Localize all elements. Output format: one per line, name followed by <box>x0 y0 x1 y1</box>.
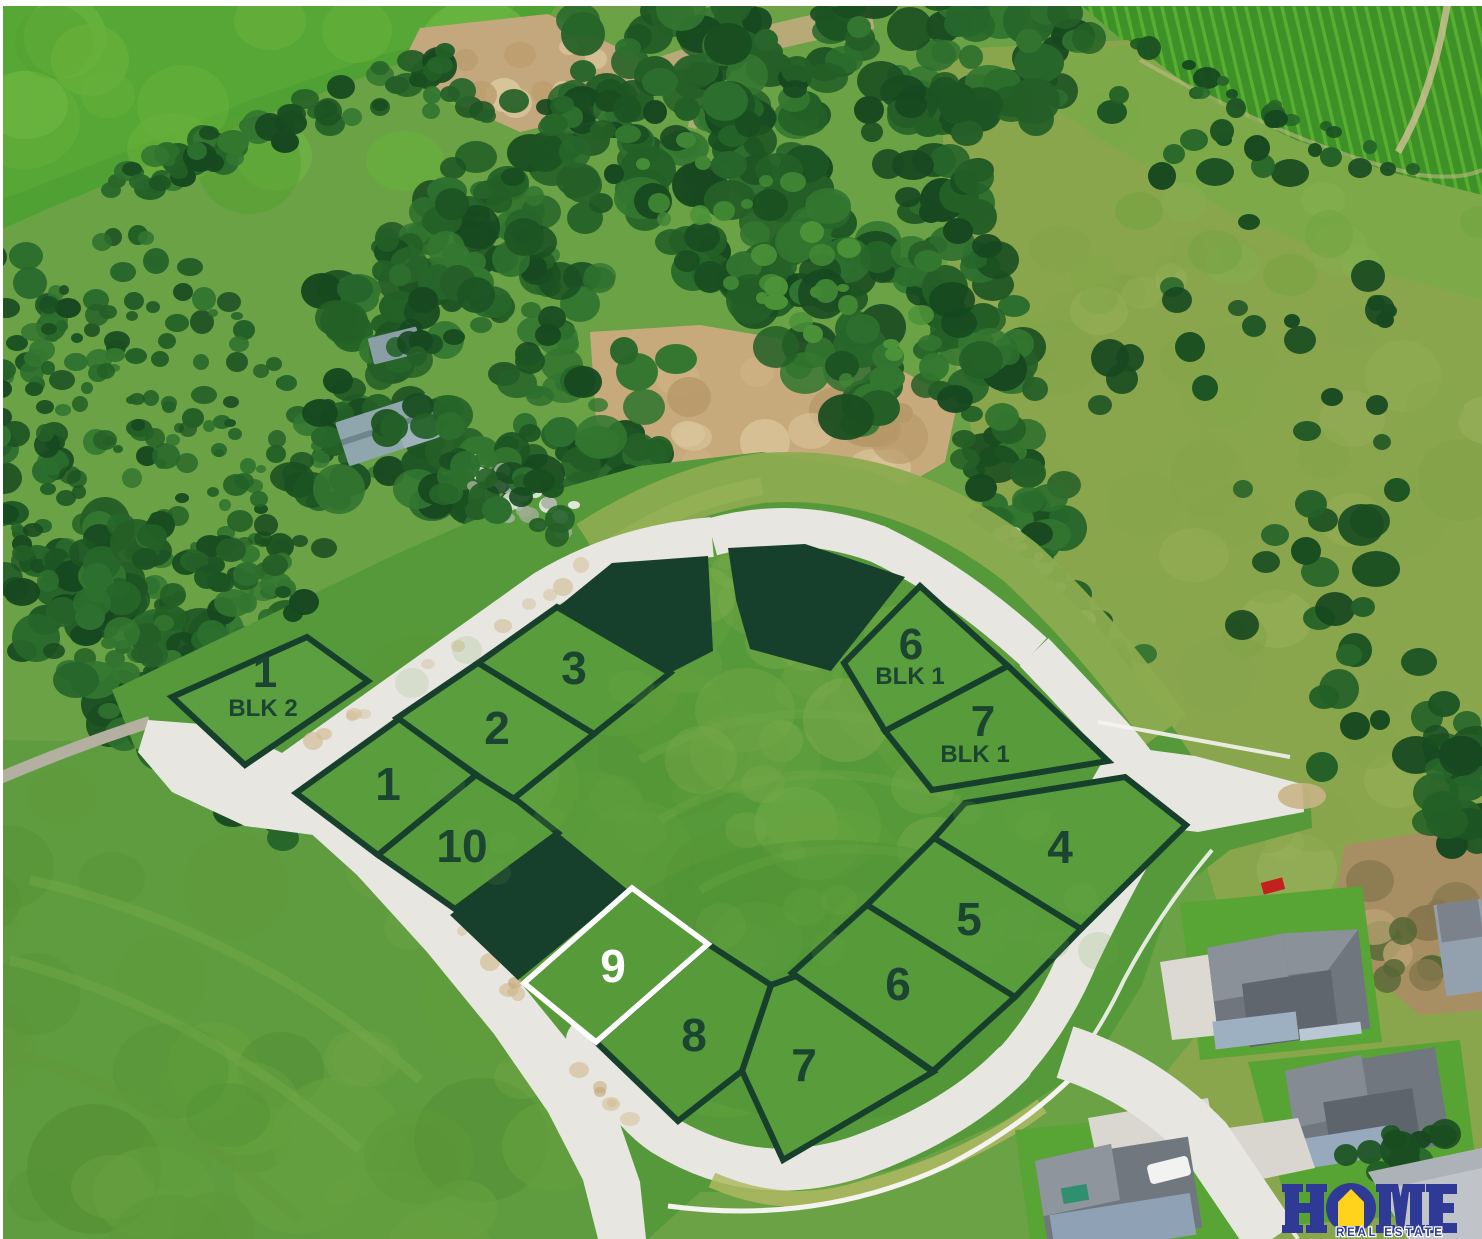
svg-text:7: 7 <box>791 1039 817 1091</box>
svg-text:5: 5 <box>956 893 982 945</box>
svg-text:7: 7 <box>971 697 995 746</box>
svg-text:9: 9 <box>600 940 626 992</box>
svg-text:REAL ESTATE: REAL ESTATE <box>1336 1227 1445 1239</box>
svg-text:6: 6 <box>885 958 911 1010</box>
svg-text:2: 2 <box>484 702 510 754</box>
svg-text:BLK 2: BLK 2 <box>228 695 297 722</box>
svg-text:4: 4 <box>1047 821 1073 873</box>
svg-text:6: 6 <box>899 620 923 669</box>
svg-text:8: 8 <box>681 1009 707 1061</box>
svg-text:1: 1 <box>375 758 401 810</box>
svg-text:3: 3 <box>561 642 587 694</box>
svg-text:1: 1 <box>253 648 277 697</box>
svg-text:BLK 1: BLK 1 <box>940 741 1009 768</box>
svg-text:BLK 1: BLK 1 <box>875 663 944 690</box>
svg-text:10: 10 <box>436 820 487 872</box>
